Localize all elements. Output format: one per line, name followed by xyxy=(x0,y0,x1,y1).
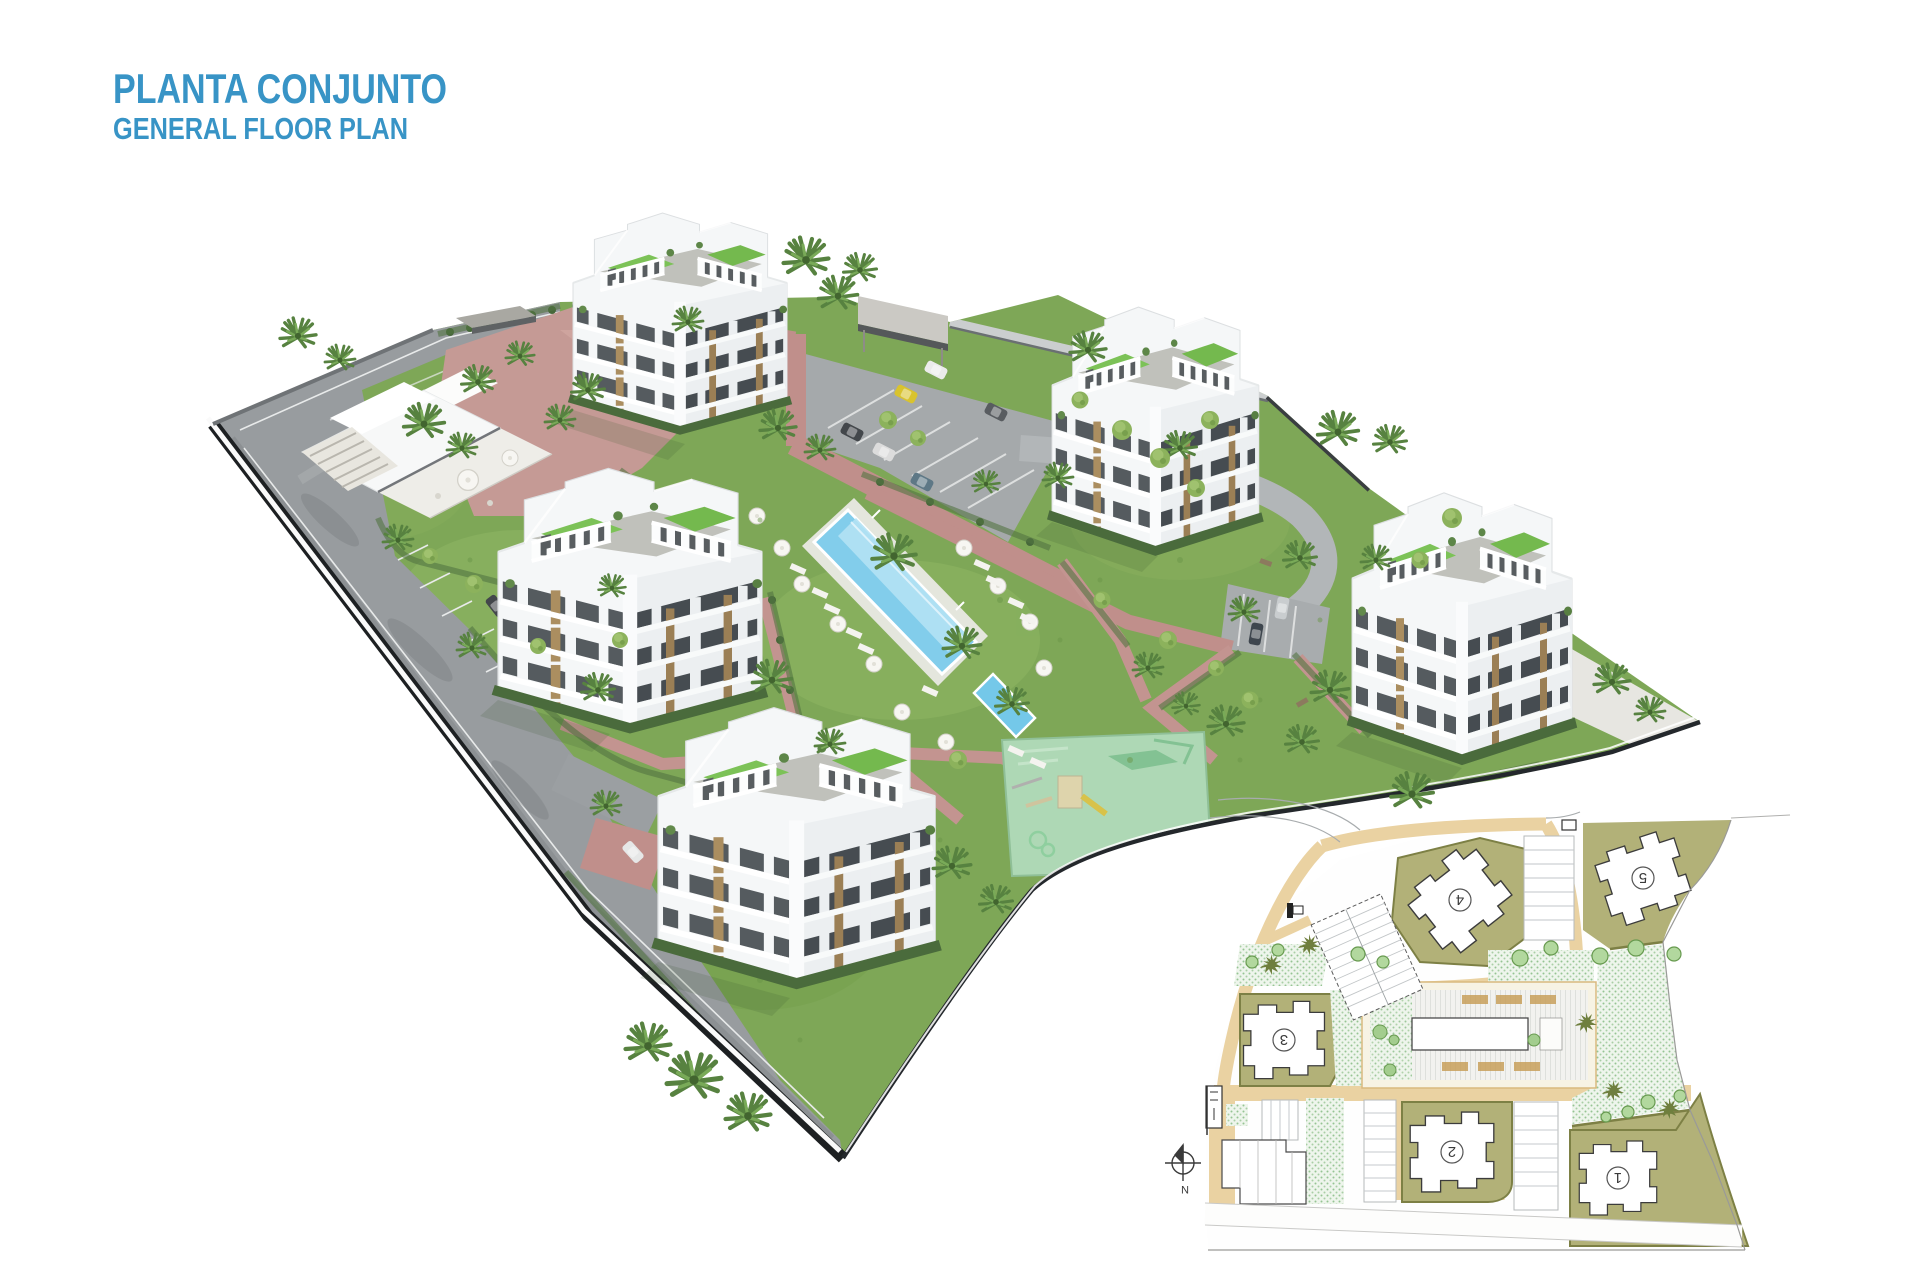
svg-text:5: 5 xyxy=(1639,869,1647,886)
svg-text:3: 3 xyxy=(1280,1031,1288,1048)
svg-text:2: 2 xyxy=(1448,1143,1456,1160)
svg-text:4: 4 xyxy=(1456,891,1464,908)
svg-text:N: N xyxy=(1181,1183,1189,1195)
svg-text:1: 1 xyxy=(1614,1169,1622,1186)
svg-text:PLANTA CONJUNTO: PLANTA CONJUNTO xyxy=(113,65,447,112)
svg-text:GENERAL FLOOR PLAN: GENERAL FLOOR PLAN xyxy=(113,111,408,146)
